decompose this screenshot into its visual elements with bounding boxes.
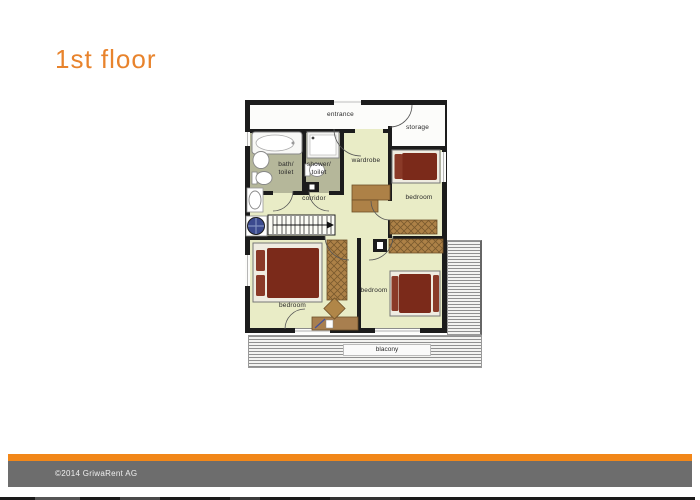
page: 1st floor bbox=[0, 0, 700, 500]
room-label-bath: bath/toilet bbox=[269, 161, 303, 177]
page-title: 1st floor bbox=[55, 44, 157, 75]
room-label-storage: storage bbox=[390, 124, 445, 132]
floor-plan: entrance storage bath/toilet shower/toil… bbox=[243, 98, 483, 370]
room-label-wardrobe: wardrobe bbox=[340, 157, 392, 165]
room-label-entrance: entrance bbox=[303, 111, 378, 119]
copyright-text: ©2014 GriwaRent AG bbox=[55, 461, 137, 487]
room-label-bedroom-top-right: bedroom bbox=[395, 194, 443, 202]
room-label-balcony: blacony bbox=[343, 344, 431, 356]
room-label-shower: shower/toilet bbox=[299, 161, 339, 177]
footer-orange-bar bbox=[8, 454, 692, 461]
footer-band: ©2014 GriwaRent AG bbox=[8, 461, 692, 487]
room-label-corridor: corridor bbox=[289, 195, 339, 203]
room-label-bedroom-bottom-middle: bedroom bbox=[348, 287, 400, 295]
room-label-bedroom-bottom-left: bedroom bbox=[265, 302, 320, 310]
balcony-right-deck bbox=[447, 240, 482, 335]
building-outline bbox=[245, 100, 447, 333]
